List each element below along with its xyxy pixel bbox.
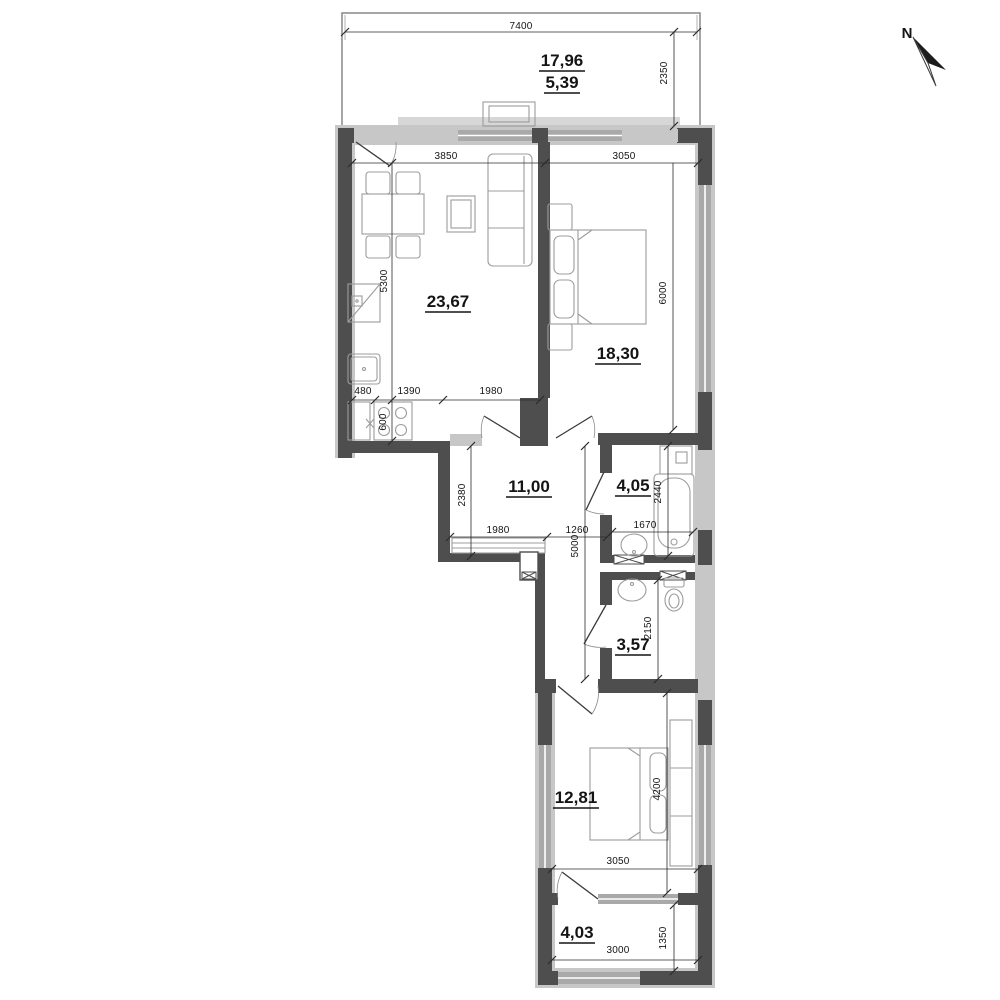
door-bedroom2	[558, 686, 598, 714]
door-balcony-top	[356, 142, 396, 166]
furniture-hall-wardrobe	[452, 538, 545, 553]
label-bedroom1-area: 18,30	[597, 344, 640, 363]
door-balcony2	[557, 872, 598, 899]
furniture-wardrobe-bedroom2	[670, 720, 692, 866]
dim-balcony-width: 7400	[509, 21, 532, 32]
dim-kitchen-seg-b: 1390	[397, 386, 420, 397]
furniture-toilet	[664, 578, 684, 611]
dim-balcony-depth: 2350	[659, 61, 670, 84]
window-sill	[398, 117, 680, 126]
dim-kitchen-depth: 600	[378, 413, 389, 431]
furniture-bed-1	[548, 204, 646, 350]
furniture-sink-wc	[618, 579, 646, 601]
furniture-balcony-table	[483, 102, 535, 126]
dim-bedroom2-depth: 4200	[652, 777, 663, 800]
dim-kitchen-seg-a: 480	[354, 386, 372, 397]
dim-living-depth: 5300	[379, 269, 390, 292]
dim-bath-depth: 2440	[653, 480, 664, 503]
dim-living-width: 3850	[434, 151, 457, 162]
dim-balcony2-width: 3000	[606, 945, 629, 956]
dim-bedroom2-width: 3050	[606, 856, 629, 867]
label-balcony-bottom-area: 4,03	[560, 923, 593, 942]
dim-corridor-depth: 5000	[570, 534, 581, 557]
label-balcony-top-area-secondary: 5,39	[545, 73, 578, 92]
north-arrow: N	[902, 25, 946, 86]
dim-hall-seg-b: 1260	[565, 525, 588, 536]
dim-bedroom1-width: 3050	[612, 151, 635, 162]
door-bathroom	[586, 472, 604, 514]
label-hallway-area: 11,00	[508, 477, 550, 496]
dim-balcony2-depth: 1350	[658, 926, 669, 949]
floor-plan-drawing: N	[0, 0, 1000, 1000]
north-needle-dark	[913, 37, 946, 70]
furniture-sofa	[488, 154, 532, 266]
label-living-area: 23,67	[427, 292, 470, 311]
label-bedroom2-area: 12,81	[555, 788, 598, 807]
dim-bath-width: 1670	[633, 520, 656, 531]
dim-bedroom1-depth: 6000	[658, 281, 669, 304]
furniture-dining-set	[362, 172, 424, 258]
furniture-sink-bath	[621, 534, 647, 556]
floor-plan-page: N	[0, 0, 1000, 1000]
label-balcony-top-area: 17,96	[541, 51, 584, 70]
dim-kitchen-seg-c: 1980	[479, 386, 502, 397]
doors	[356, 142, 606, 899]
label-bathroom-area: 4,05	[616, 476, 649, 495]
door-wc	[584, 605, 606, 647]
furniture-shaft	[520, 552, 538, 580]
furniture-coffee-table	[447, 196, 475, 232]
label-wc-area: 3,57	[616, 635, 649, 654]
door-kitchen	[481, 416, 520, 438]
dim-hall-seg-a: 1980	[486, 525, 509, 536]
door-bedroom1	[556, 416, 595, 438]
dim-hall-depth: 2380	[457, 483, 468, 506]
north-label: N	[902, 25, 913, 42]
furniture-washing-machine	[660, 446, 692, 474]
